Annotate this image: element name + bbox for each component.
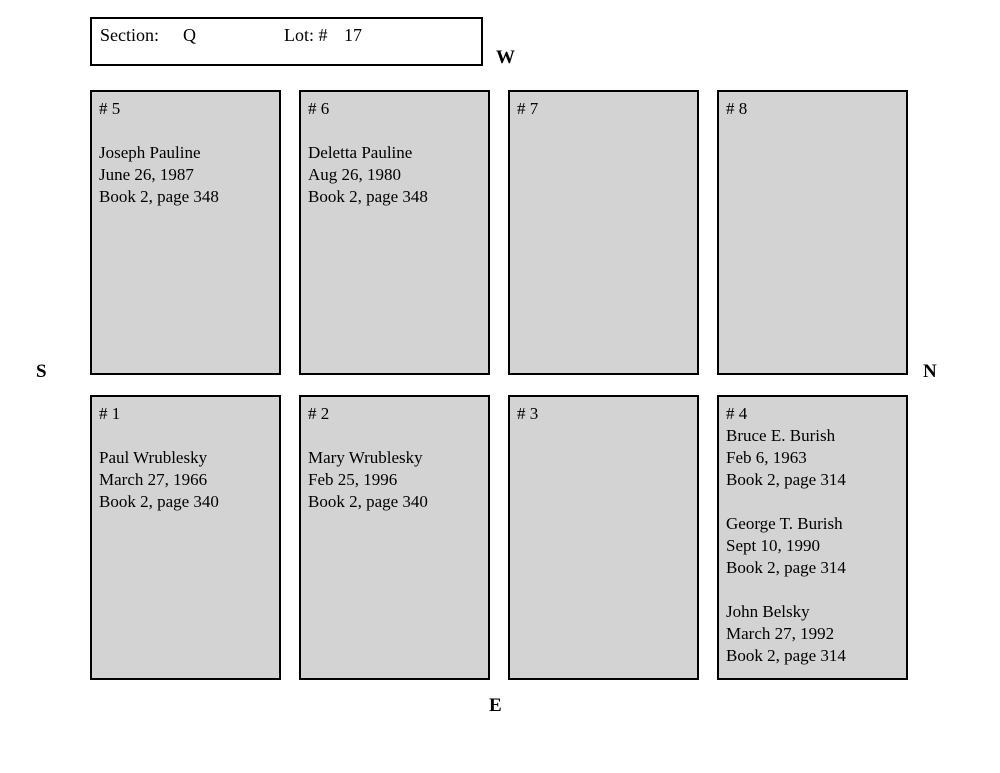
compass-north-label: N [923,361,937,383]
section-label: Section: [100,25,159,46]
plot-number: # 6 [308,98,481,120]
compass-east-label: E [489,695,502,717]
burial-record: John Belsky March 27, 1992 Book 2, page … [726,601,899,667]
record-date: Aug 26, 1980 [308,164,481,186]
record-book: Book 2, page 340 [308,491,481,513]
record-name: George T. Burish [726,513,899,535]
record-date: Feb 25, 1996 [308,469,481,491]
compass-west-label: W [496,47,515,69]
burial-record: Bruce E. Burish Feb 6, 1963 Book 2, page… [726,425,899,491]
plot-box-5: # 5 Joseph Pauline June 26, 1987 Book 2,… [90,90,281,375]
record-book: Book 2, page 340 [99,491,272,513]
record-book: Book 2, page 314 [726,645,899,667]
record-date: March 27, 1992 [726,623,899,645]
burial-record: Mary Wrublesky Feb 25, 1996 Book 2, page… [308,447,481,513]
record-date: March 27, 1966 [99,469,272,491]
record-name: John Belsky [726,601,899,623]
record-date: June 26, 1987 [99,164,272,186]
plot-number: # 5 [99,98,272,120]
plot-number: # 7 [517,98,690,120]
record-name: Paul Wrublesky [99,447,272,469]
plot-box-6: # 6 Deletta Pauline Aug 26, 1980 Book 2,… [299,90,490,375]
section-lot-header: Section: Q Lot: # 17 [90,17,483,66]
plot-records: Paul Wrublesky March 27, 1966 Book 2, pa… [99,447,272,513]
record-name: Bruce E. Burish [726,425,899,447]
plot-records: Deletta Pauline Aug 26, 1980 Book 2, pag… [308,142,481,208]
record-book: Book 2, page 348 [99,186,272,208]
plot-number: # 3 [517,403,690,425]
burial-record: Deletta Pauline Aug 26, 1980 Book 2, pag… [308,142,481,208]
plot-records: Bruce E. Burish Feb 6, 1963 Book 2, page… [726,425,899,667]
record-date: Feb 6, 1963 [726,447,899,469]
burial-record: George T. Burish Sept 10, 1990 Book 2, p… [726,513,899,579]
plot-box-1: # 1 Paul Wrublesky March 27, 1966 Book 2… [90,395,281,680]
section-value: Q [183,25,196,46]
record-book: Book 2, page 348 [308,186,481,208]
record-book: Book 2, page 314 [726,469,899,491]
lot-value: 17 [344,25,362,46]
plot-box-8: # 8 [717,90,908,375]
record-name: Joseph Pauline [99,142,272,164]
cemetery-lot-diagram: Section: Q Lot: # 17 W S N E # 5 Joseph … [0,0,1000,773]
lot-label: Lot: # [284,25,328,46]
plot-number: # 4 [726,403,899,425]
record-date: Sept 10, 1990 [726,535,899,557]
plot-records: Joseph Pauline June 26, 1987 Book 2, pag… [99,142,272,208]
burial-record: Paul Wrublesky March 27, 1966 Book 2, pa… [99,447,272,513]
plot-number: # 1 [99,403,272,425]
record-name: Deletta Pauline [308,142,481,164]
record-name: Mary Wrublesky [308,447,481,469]
plot-box-7: # 7 [508,90,699,375]
plot-number: # 8 [726,98,899,120]
compass-south-label: S [36,361,47,383]
plot-box-4: # 4 Bruce E. Burish Feb 6, 1963 Book 2, … [717,395,908,680]
burial-record: Joseph Pauline June 26, 1987 Book 2, pag… [99,142,272,208]
plot-box-2: # 2 Mary Wrublesky Feb 25, 1996 Book 2, … [299,395,490,680]
plot-number: # 2 [308,403,481,425]
record-book: Book 2, page 314 [726,557,899,579]
plot-box-3: # 3 [508,395,699,680]
plot-records: Mary Wrublesky Feb 25, 1996 Book 2, page… [308,447,481,513]
